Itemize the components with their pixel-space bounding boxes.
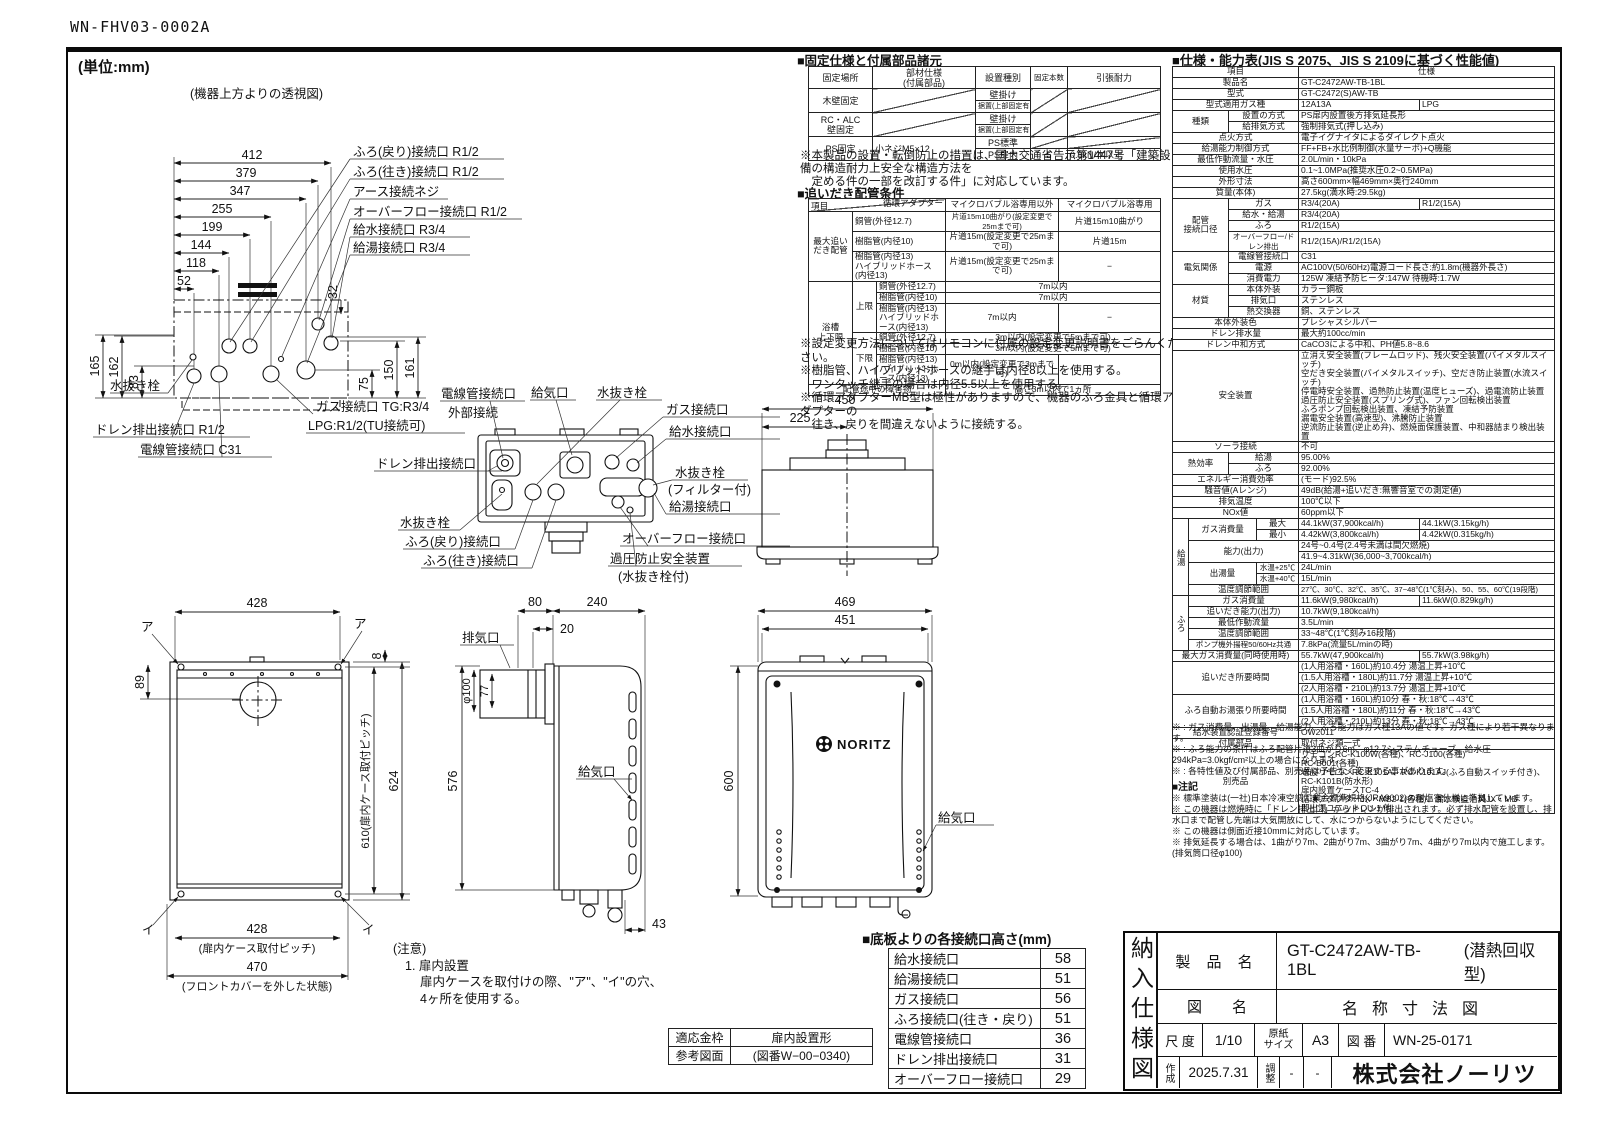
note-line: ※ : ふろ能力の条件はふろ配管片道3曲がり6m、φ12.7システムチューブ、給… xyxy=(1172,744,1556,766)
dim-75: 75 xyxy=(357,377,371,391)
cell-label: 点火方式 xyxy=(1173,133,1299,144)
title-block: 納入仕様図 製 品 名 GT-C2472AW-TB-1BL (潜熱回収型) 図 … xyxy=(1123,931,1560,1091)
cell-label: 排気温度 xyxy=(1173,497,1299,508)
dim-412: 412 xyxy=(242,148,263,162)
cell-value: 壁掛け xyxy=(976,89,1031,101)
cell-label: 給湯 xyxy=(1173,519,1189,596)
cell-label: 使用水圧 xyxy=(1173,166,1299,177)
dim-118: 118 xyxy=(186,256,206,270)
cell-value: C31 xyxy=(1299,252,1555,263)
paper-size-label: 原紙 サイズ xyxy=(1255,1024,1303,1057)
marker-i-right: イ xyxy=(362,923,375,937)
note-line: ※循環アダプターMB型は極性がありますので、機器のふろ金具と循環アダプターの xyxy=(800,392,1180,419)
label-b-furo-go: ふろ(往き)接続口 xyxy=(423,553,519,568)
cell-value: 4.42kW(3,800kcal/h) xyxy=(1299,530,1420,541)
label-intake-side: 給気口 xyxy=(578,764,616,779)
empty-cell xyxy=(1031,137,1068,149)
cell-label: ふろ xyxy=(1229,221,1299,232)
label-conduit: 電線管接続口 C31 xyxy=(140,442,241,457)
spec-notes: ※ : ガス消費量、出湯量、給湯能力、ふろ能力はガス種13Aの値です。ガス種によ… xyxy=(1172,722,1556,859)
cell-label: ガス消費量 xyxy=(1189,519,1257,541)
cell-value: 27.5kg(満水時:29.5kg) xyxy=(1299,188,1555,199)
company-logo: 株式会社ノーリツ xyxy=(1332,1057,1557,1088)
dim-20: 20 xyxy=(560,622,574,636)
cell-label: 水温+25℃ xyxy=(1257,563,1299,574)
cell-label: 銅管(外径12.7) xyxy=(877,281,946,292)
label-furo-go: ふろ(往き)接続口 R1/2 xyxy=(353,164,479,179)
cell-value: 33~48℃(1℃刻み16段階) xyxy=(1299,629,1555,640)
cell-label: ドレン排水量 xyxy=(1173,329,1299,340)
note-line: ※ この機器は側面近接10mmに対応しています。 xyxy=(1172,826,1556,837)
cell-label: ガス接続口 xyxy=(889,989,1041,1009)
heights-table: 給水接続口58 給湯接続口51 ガス接続口56 ふろ接続口(往き・戻り)51 電… xyxy=(888,948,1086,1089)
dim-77: 77 xyxy=(479,685,491,697)
cell-label: 最大ガス消費量(同時使用時) xyxy=(1173,651,1299,662)
dim-dia100: φ100 xyxy=(461,678,473,704)
label-b-overflow: オーバーフロー接続口 xyxy=(622,531,746,546)
cell-value: 据置(上部固定有り) xyxy=(976,101,1031,113)
dim-240: 240 xyxy=(587,595,608,609)
dim-610: 610(扉内ケース取付ピッチ) xyxy=(358,713,372,848)
cell-label: 給湯接続口 xyxy=(889,969,1041,989)
dim-470: 470 xyxy=(247,960,268,974)
cell-value: (1.5人用浴槽・180L)約11分 春・秋:18℃→43℃ xyxy=(1299,706,1555,717)
cell-label: ふろ xyxy=(1229,464,1299,475)
cell-value: (1人用浴槽・160L)約10.4分 湯温上昇+10℃ xyxy=(1299,662,1555,673)
cell-value: 100℃以下 xyxy=(1299,497,1555,508)
title-product-value: GT-C2472AW-TB-1BL xyxy=(1287,942,1450,980)
created-date: 2025.7.31 xyxy=(1180,1057,1258,1088)
cell-value: R3/4(20A) xyxy=(1299,199,1420,210)
cell-label: ドレン中和方式 xyxy=(1173,340,1299,351)
cell-value: 最大約100cc/min xyxy=(1299,329,1555,340)
dim-469: 469 xyxy=(835,595,856,609)
cell-value: 58 xyxy=(1041,949,1086,969)
diagonal-header-cell: 項目 循環アダプター xyxy=(809,199,946,212)
dim-428-bottom: 428 xyxy=(247,922,268,936)
adjust-value-1: - xyxy=(1280,1057,1304,1088)
cell-label: 型式適用ガス種 xyxy=(1173,100,1299,111)
label-exhaust-port: 排気口 xyxy=(462,630,500,645)
note-line: ※本製品の設置・転倒防止の措置は、国土交通省告示第1447号「建築設備の構造耐力… xyxy=(800,150,1175,176)
note-line: ※ : ガス消費量、出湯量、給湯能力、ふろ能力はガス種13Aの値です。ガス種によ… xyxy=(1172,722,1556,744)
cell-label: 温度調節範囲 xyxy=(1189,629,1299,640)
cell-label: エネルギー消費効率 xyxy=(1173,475,1299,486)
cell-label: 本体外装色 xyxy=(1173,318,1299,329)
cell-value: CaCO3による中和、PH値5.8~8.6 xyxy=(1299,340,1555,351)
product-name: GT-C2472AW-TB-1BL xyxy=(1299,78,1555,89)
cell-value: 44.1kW(37,900kcal/h) xyxy=(1299,519,1420,530)
label-b-water-in: 給水接続口 xyxy=(669,424,732,439)
pitch-note: (扉内ケース取付ピッチ) xyxy=(199,941,316,955)
cell-label: 騒音値(Aレンジ) xyxy=(1173,486,1299,497)
label-b-conduit: 電線管接続口 xyxy=(441,386,516,401)
cell-label: 仕様 xyxy=(1299,67,1555,78)
cell-label: RC・ALC 壁固定 xyxy=(809,113,873,137)
cell-label: 設置の方式 xyxy=(1229,111,1299,122)
marker-i-left: イ xyxy=(142,923,155,937)
created-label: 作成 xyxy=(1158,1057,1180,1088)
cell-label: 材質 xyxy=(1173,285,1229,318)
cell-value: 44.1kW(3.15kg/h) xyxy=(1420,519,1555,530)
note-line: ※ 標準塗装は(一社)日本冷凍空調工業会標準規格(JRA9002)の耐塩害仕様に… xyxy=(1172,793,1556,804)
cell-label: 給湯 xyxy=(1229,453,1299,464)
cell-label: 樹脂管(内径10) xyxy=(853,232,946,252)
cell-label: 給水接続口 xyxy=(889,949,1041,969)
cell-value: 10.7kW(9,180kcal/h) xyxy=(1299,607,1555,618)
caution-line3: 扉内ケースを取付けの際、"ア"、"イ"の穴、 xyxy=(420,974,693,991)
scale-value: 1/10 xyxy=(1203,1024,1255,1057)
empty-cell xyxy=(1031,113,1068,137)
dim-52: 52 xyxy=(177,274,191,288)
cell-value: R1/2(15A) xyxy=(1299,221,1555,232)
cell-label: 出湯量 xyxy=(1189,563,1257,585)
cell-value: 49dB(給湯+追いだき:無響音室での測定値) xyxy=(1299,486,1555,497)
cell-value: 扉内設置形 xyxy=(731,1029,873,1047)
dim-624: 624 xyxy=(387,771,401,792)
dim-576: 576 xyxy=(446,771,460,792)
cell-value: 7m以内 xyxy=(946,281,1161,292)
dim-451: 451 xyxy=(835,613,856,627)
cell-value: R1/2(15A) xyxy=(1420,199,1555,210)
cell-value: 36 xyxy=(1041,1029,1086,1049)
cell-value: 7m以内 xyxy=(946,292,1161,303)
cell-label: 最低作動流量・水圧 xyxy=(1173,155,1299,166)
cell-value: カラー鋼板 xyxy=(1299,285,1555,296)
dim-379: 379 xyxy=(236,166,257,180)
empty-cell xyxy=(1031,89,1068,113)
cell-label: 最大 xyxy=(1257,519,1299,530)
cell-label: 最低作動流量 xyxy=(1189,618,1299,629)
cell-value: 51 xyxy=(1041,969,1086,989)
side-view: 80 240 20 排気口 φ100 xyxy=(446,595,666,934)
cell-label: 給水・給湯 xyxy=(1229,210,1299,221)
cell-label: 排気口 xyxy=(1229,296,1299,307)
cell-label: 樹脂管(内径13) ハイブリッドホース(内径13) xyxy=(877,303,946,333)
dim-428-top: 428 xyxy=(247,596,268,610)
cell-label: 設置種別 xyxy=(976,67,1031,89)
scale-label: 尺 度 xyxy=(1158,1024,1203,1057)
label-b-drain-plug2: 水抜き栓 xyxy=(675,465,726,480)
cell-label: ガス xyxy=(1229,199,1299,210)
cell-value: (2人用浴槽・210L)約13.7分 湯温上昇+10℃ xyxy=(1299,684,1555,695)
cell-label: 電源 xyxy=(1229,263,1299,274)
cell-value: 強制排気式(押し込み) xyxy=(1299,122,1555,133)
spec-drawing-sheet: WN-FHV03-0002A (単位:mm) (機器上方よりの透視図) 412 … xyxy=(0,0,1600,1131)
drawing-number-label: 図 番 xyxy=(1339,1024,1385,1057)
cell-value: 31 xyxy=(1041,1049,1086,1069)
cell-value: 7m以内 xyxy=(946,303,1059,333)
cell-value: GT-C2472(S)AW-TB xyxy=(1299,89,1555,100)
cell-value: 27℃、30℃、32℃、35℃、37~48℃(1℃刻み)、50、55、60℃(1… xyxy=(1299,585,1555,596)
cell-value: 0.1~1.0MPa(推奨水圧0.2~0.5MPa) xyxy=(1299,166,1555,177)
cell-label: 項目 xyxy=(1173,67,1299,78)
cell-label: 質量(本体) xyxy=(1173,188,1299,199)
label-water-in: 給水接続口 R3/4 xyxy=(353,222,445,237)
cell-value: 24号~0.4号(2.4号未満は間欠燃焼) xyxy=(1299,541,1555,552)
cell-label: 電線管接続口 xyxy=(889,1029,1041,1049)
cell-value: (1.5人用浴槽・180L)約11.7分 湯温上昇+10℃ xyxy=(1299,673,1555,684)
cell-value: 11.6kW(9,980kcal/h) xyxy=(1299,596,1420,607)
empty-cell xyxy=(1068,89,1161,113)
caution-line4: 4ヶ所を使用する。 xyxy=(420,991,693,1008)
label-b-drain-out: ドレン排出接続口 xyxy=(376,456,476,471)
spec-table: 項目仕様 製品名GT-C2472AW-TB-1BL 型式GT-C2472(S)A… xyxy=(1172,66,1555,814)
dim-600: 600 xyxy=(722,771,736,792)
cell-value: 据置(上部固定有り) xyxy=(976,125,1031,137)
label-hot-out: 給湯接続口 R3/4 xyxy=(353,240,445,255)
cell-value: 51 xyxy=(1041,1009,1086,1029)
cell-value: (図番W−00−0340) xyxy=(731,1047,873,1065)
cell-value: PS標準 xyxy=(976,137,1031,149)
cell-label: 本体外装 xyxy=(1229,285,1299,296)
cell-value: 7.8kPa(流量5L/minの時) xyxy=(1299,640,1555,651)
cell-label: 銅管(外径12.7) xyxy=(853,212,946,232)
cell-value: LPG xyxy=(1420,100,1555,111)
front-open-view: 428 ア ア 8 89 xyxy=(133,596,410,993)
cell-label: マイクロバブル浴専用 xyxy=(1059,199,1161,212)
cover-note: (フロントカバーを外した状態) xyxy=(182,979,332,993)
cell-label: 電線管接続口 xyxy=(1229,252,1299,263)
cell-value: 56 xyxy=(1041,989,1086,1009)
label-gas-lpg: LPG:R1/2(TU接続可) xyxy=(308,418,425,433)
cell-label: 部材仕様 (付属部品) xyxy=(873,67,976,89)
cell-label: オーバーフロー/ドレン排出 xyxy=(1229,232,1299,252)
note-line: ※樹脂管、ハイブリッドホースの継手は内径8以上を使用する。 xyxy=(800,365,1180,379)
cell-value: 55.7kW(47,900kcal/h) xyxy=(1299,651,1420,662)
paper-size-value: A3 xyxy=(1303,1024,1339,1057)
cell-value: (1人用浴槽・160L)約10分 春・秋:18℃→43℃ xyxy=(1299,695,1555,706)
dim-43: 43 xyxy=(652,917,666,931)
heights-table-title: ■底板よりの各接続口高さ(mm) xyxy=(862,928,1051,948)
cell-label: 製品名 xyxy=(1173,78,1299,89)
empty-cell xyxy=(1068,137,1161,149)
cell-label: 種類 xyxy=(1173,111,1229,133)
drawing-name-value: 名称寸法図 xyxy=(1277,990,1557,1024)
cell-value: 片道15m(設定変更で25mまで可) xyxy=(946,252,1059,282)
cell-label: 熱交換器 xyxy=(1229,307,1299,318)
label-b-relief2: (水抜き栓付) xyxy=(618,569,689,584)
cell-value: 立消え安全装置(フレームロッド)、残火安全装置(バイメタルスイッチ) 空だき安全… xyxy=(1299,351,1555,442)
dim-144: 144 xyxy=(191,238,212,252)
cell-value: 4.42kW(0.315kg/h) xyxy=(1420,530,1555,541)
cell-label: 木壁固定 xyxy=(809,89,873,113)
dim-347: 347 xyxy=(230,184,251,198)
cell-value: ステンレス xyxy=(1299,296,1555,307)
cell-label: ドレン排出接続口 xyxy=(889,1049,1041,1069)
dim-255: 255 xyxy=(212,202,233,216)
cell-label: ふろ xyxy=(1173,596,1189,651)
cell-label: ふろ接続口(往き・戻り) xyxy=(889,1009,1041,1029)
dim-8: 8 xyxy=(370,652,384,659)
empty-cell xyxy=(1068,113,1161,137)
label-intake-front: 給気口 xyxy=(938,810,976,825)
cell-label: 最小 xyxy=(1257,530,1299,541)
label-gas-tg: ガス接続口 TG:R3/4 xyxy=(316,399,429,414)
cell-value: 片道15m10曲がり xyxy=(1059,212,1161,232)
cell-value: 24L/min xyxy=(1299,563,1555,574)
marker-a-right: ア xyxy=(354,617,367,631)
cell-value: 不可 xyxy=(1299,442,1555,453)
title-product-note: (潜熱回収型) xyxy=(1464,937,1557,985)
cell-value: − xyxy=(1059,303,1161,333)
cell-value: 電子イグナイタによるダイレクト点火 xyxy=(1299,133,1555,144)
cell-label: 安全装置 xyxy=(1173,351,1299,442)
notes-title: ■注記 xyxy=(1172,782,1556,793)
reheat-table-notes: ※設定変更方法についてはリモコンに付属の設定変更説明書をごらんください。 ※樹脂… xyxy=(800,338,1180,433)
cell-label: 給排気方式 xyxy=(1229,122,1299,133)
cell-value: 12A13A xyxy=(1299,100,1420,111)
label-b-drain-plug3: 水抜き栓 xyxy=(400,515,451,530)
cell-label: 樹脂管(内径13) ハイブリッドホース(内径13) xyxy=(853,252,946,282)
label-b-gas: ガス接続口 xyxy=(666,402,729,417)
cell-label: 固定場所 xyxy=(809,67,873,89)
cell-value: 15L/min xyxy=(1299,574,1555,585)
empty-cell xyxy=(873,89,976,113)
cell-label: 最大追い だき配管 xyxy=(809,212,853,282)
cell-label: 上限 xyxy=(853,281,877,333)
label-b-furo-return: ふろ(戻り)接続口 xyxy=(405,534,501,549)
bottom-connection-view: 電線管接続口 外部接続 給気口 水抜き栓 ガス接続口 給水接続口 水抜き栓 (フ… xyxy=(374,385,790,584)
label-b-hot-out: 給湯接続口 xyxy=(669,499,732,514)
cell-value: 銅、ステンレス xyxy=(1299,307,1555,318)
caution-note: (注意) 1. 扉内設置 扉内ケースを取付けの際、"ア"、"イ"の穴、 4ヶ所を… xyxy=(393,941,693,1007)
note-line: ※設定変更方法についてはリモコンに付属の設定変更説明書をごらんください。 xyxy=(800,338,1180,365)
cell-value: 2.0L/min・10kPa xyxy=(1299,155,1555,166)
label-furo-return: ふろ(戻り)接続口 R1/2 xyxy=(353,144,479,159)
cell-label: ソーラ接続 xyxy=(1173,442,1299,453)
cell-value: 125W 凍結予防ヒータ:147W 待機時:1.7W xyxy=(1299,274,1555,285)
cell-value: 55.7kW(3.98kg/h) xyxy=(1420,651,1555,662)
cell-label: 外形寸法 xyxy=(1173,177,1299,188)
adjust-label: 調整 xyxy=(1258,1057,1280,1088)
cell-label: 型式 xyxy=(1173,89,1299,100)
label-earth: アース接続ネジ xyxy=(353,184,439,199)
noritz-logo-text: NORITZ xyxy=(837,737,891,752)
title-block-doc-type: 納入仕様図 xyxy=(1125,933,1158,1088)
caution-line1: (注意) xyxy=(393,941,693,958)
cell-label: ポンプ機外揚程50/60Hz共通 xyxy=(1189,640,1299,651)
cell-label: 適応金枠 xyxy=(669,1029,731,1047)
cell-label: 固定本数 xyxy=(1031,67,1068,89)
top-view-caption: (機器上方よりの透視図) xyxy=(190,86,323,101)
drawing-name-label: 図 名 xyxy=(1158,990,1277,1024)
label-overflow: オーバーフロー接続口 R1/2 xyxy=(353,204,507,219)
adjust-value-2: - xyxy=(1304,1057,1332,1088)
cell-value: FF+FB+水比例制御(水量サーボ)+Q機能 xyxy=(1299,144,1555,155)
note-line: ※ 排気延長する場合は、1曲がり7m、2曲がり7m、3曲がり7m、4曲がり7m以… xyxy=(1172,837,1556,859)
cell-value: 高さ600mm×幅469mm×奥行240mm xyxy=(1299,177,1555,188)
marker-a-left: ア xyxy=(141,620,154,634)
note-line: ワンタッチ継手の場合は内径5.5以上を使用する。 xyxy=(800,379,1180,393)
cell-value: 60ppm以下 xyxy=(1299,508,1555,519)
cell-value: 片道15m10曲がり(設定変更で25mまで可) xyxy=(946,212,1059,232)
front-view: 469 451 600 NORITZ xyxy=(722,595,994,918)
cell-value: 3.5L/min xyxy=(1299,618,1555,629)
cell-value: R3/4(20A) xyxy=(1299,210,1555,221)
cell-value: プレシャスシルバー xyxy=(1299,318,1555,329)
cell-value: 92.00% xyxy=(1299,464,1555,475)
cell-label: 追いだき所要時間 xyxy=(1173,662,1299,695)
cell-value: 95.00% xyxy=(1299,453,1555,464)
label-drain-plug: 水抜き栓 xyxy=(110,378,161,393)
cell-label: NOx値 xyxy=(1173,508,1299,519)
cell-label: 給湯能力制御方式 xyxy=(1173,144,1299,155)
cell-value: − xyxy=(1059,252,1161,282)
dim-162: 162 xyxy=(107,357,121,378)
cell-label: 参考図面 xyxy=(669,1047,731,1065)
cell-label: 電気関係 xyxy=(1173,252,1229,285)
cell-label: 能力(出力) xyxy=(1189,541,1299,563)
cell-value: 片道15m(設定変更で25mまで可) xyxy=(946,232,1059,252)
fixing-table: 固定場所 部材仕様 (付属部品) 設置種別 固定本数 引張耐力 木壁固定 壁掛け… xyxy=(808,66,1161,161)
cell-label: 熱効率 xyxy=(1173,453,1229,475)
cell-label: 樹脂管(内径10) xyxy=(877,292,946,303)
cell-value: 片道15m xyxy=(1059,232,1161,252)
empty-cell xyxy=(873,113,976,137)
label-b-relief: 過圧防止安全装置 xyxy=(610,551,710,566)
dim-199: 199 xyxy=(202,220,223,234)
cell-value: 41.9~4.31kW(36,000~3,700kcal/h) xyxy=(1299,552,1555,563)
cell-value: 壁掛け xyxy=(976,113,1031,125)
cell-label: ガス消費量 xyxy=(1189,596,1299,607)
caution-line2: 1. 扉内設置 xyxy=(405,958,693,975)
label-b-intake: 給気口 xyxy=(531,385,569,400)
dim-161: 161 xyxy=(403,358,417,379)
cell-label: 項目 xyxy=(811,202,828,212)
cell-label: 循環アダプター xyxy=(883,199,943,209)
cell-value: AC100V(50/60Hz)電源コード長さ:約1.8m(機器外長さ) xyxy=(1299,263,1555,274)
cell-value: 29 xyxy=(1041,1069,1086,1089)
label-b-external: 外部接続 xyxy=(448,405,499,420)
cell-label: 水温+40℃ xyxy=(1257,574,1299,585)
frame-reference-table: 適応金枠扉内設置形 参考図面(図番W−00−0340) xyxy=(668,1028,873,1065)
cell-label: 配管 接続口径 xyxy=(1173,199,1229,252)
cell-value: R1/2(15A)/R1/2(15A) xyxy=(1299,232,1555,252)
label-drain-out: ドレン排出接続口 R1/2 xyxy=(95,422,225,437)
cell-label: 引張耐力 xyxy=(1068,67,1161,89)
dim-89: 89 xyxy=(133,675,147,689)
cell-value: (モード)92.5% xyxy=(1299,475,1555,486)
label-b-drain-plug: 水抜き栓 xyxy=(597,385,648,400)
note-line: ※ : 各特性値及び付属部品、別売品は予告なく変更する事があります。 xyxy=(1172,766,1556,777)
cell-label: マイクロバブル浴専用以外 xyxy=(946,199,1059,212)
note-line: ※ この機器は燃焼時に「ドレン排出口」からドレンが排出されます。必ず排水配管を設… xyxy=(1172,804,1556,826)
cell-label: 消費電力 xyxy=(1229,274,1299,285)
label-b-filter: (フィルター付) xyxy=(668,483,751,497)
cell-label: 追いだき能力(出力) xyxy=(1189,607,1299,618)
cell-value: 11.6kW(0.829kg/h) xyxy=(1420,596,1555,607)
cell-label: オーバーフロー接続口 xyxy=(889,1069,1041,1089)
cell-label: 温度調節範囲 xyxy=(1189,585,1299,596)
product-name-label: 製 品 名 xyxy=(1158,933,1277,990)
dim-165: 165 xyxy=(88,356,102,377)
drawing-number-value: WN-25-0171 xyxy=(1385,1024,1557,1057)
noritz-logo: NORITZ xyxy=(816,736,891,752)
cell-value: PS扉内設置後方排気延長形 xyxy=(1299,111,1555,122)
dim-80: 80 xyxy=(528,595,542,609)
note-line: 往き、戻りを間違えないように接続する。 xyxy=(800,419,1180,433)
dim-150: 150 xyxy=(382,360,396,381)
